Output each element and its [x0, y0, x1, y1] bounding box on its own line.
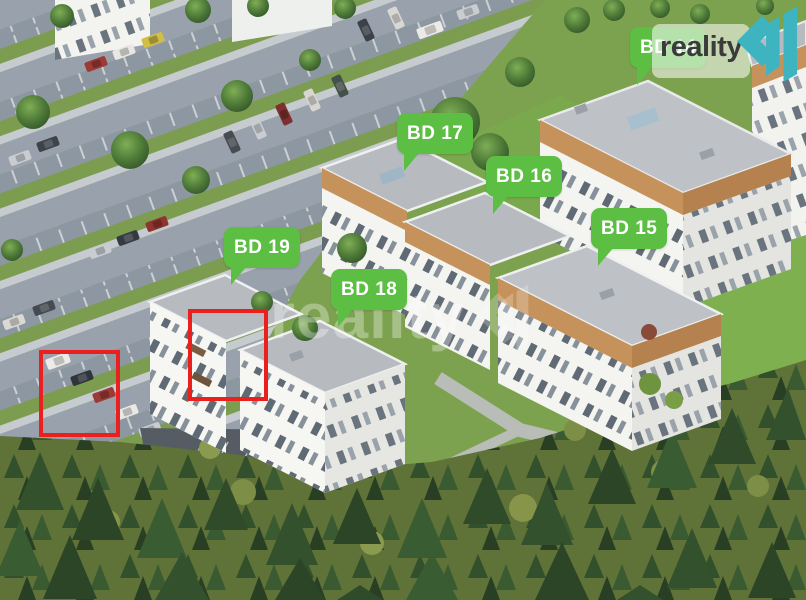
building-label-bd-17: BD 17 [397, 113, 473, 154]
brand-wordmark: reality [660, 33, 742, 62]
building-label-bd-16: BD 16 [486, 156, 562, 197]
label-text: BD 19 [234, 237, 290, 258]
building-label-bd-18: BD 18 [331, 269, 407, 310]
highlight-rect-apartment [188, 309, 268, 401]
label-text: BD 17 [407, 123, 463, 144]
label-text: BD 18 [341, 279, 397, 300]
building-label-bd-15: BD 15 [591, 208, 667, 249]
aerial-development-render: reality BD 14 BD 17 BD 16 BD 15 BD 19 BD… [0, 0, 806, 600]
label-text: BD 16 [496, 166, 552, 187]
reality-11-logo-icon [737, 5, 799, 89]
building-label-bd-19: BD 19 [224, 227, 300, 268]
highlight-rect-parking [39, 350, 120, 437]
label-text: BD 15 [601, 218, 657, 239]
